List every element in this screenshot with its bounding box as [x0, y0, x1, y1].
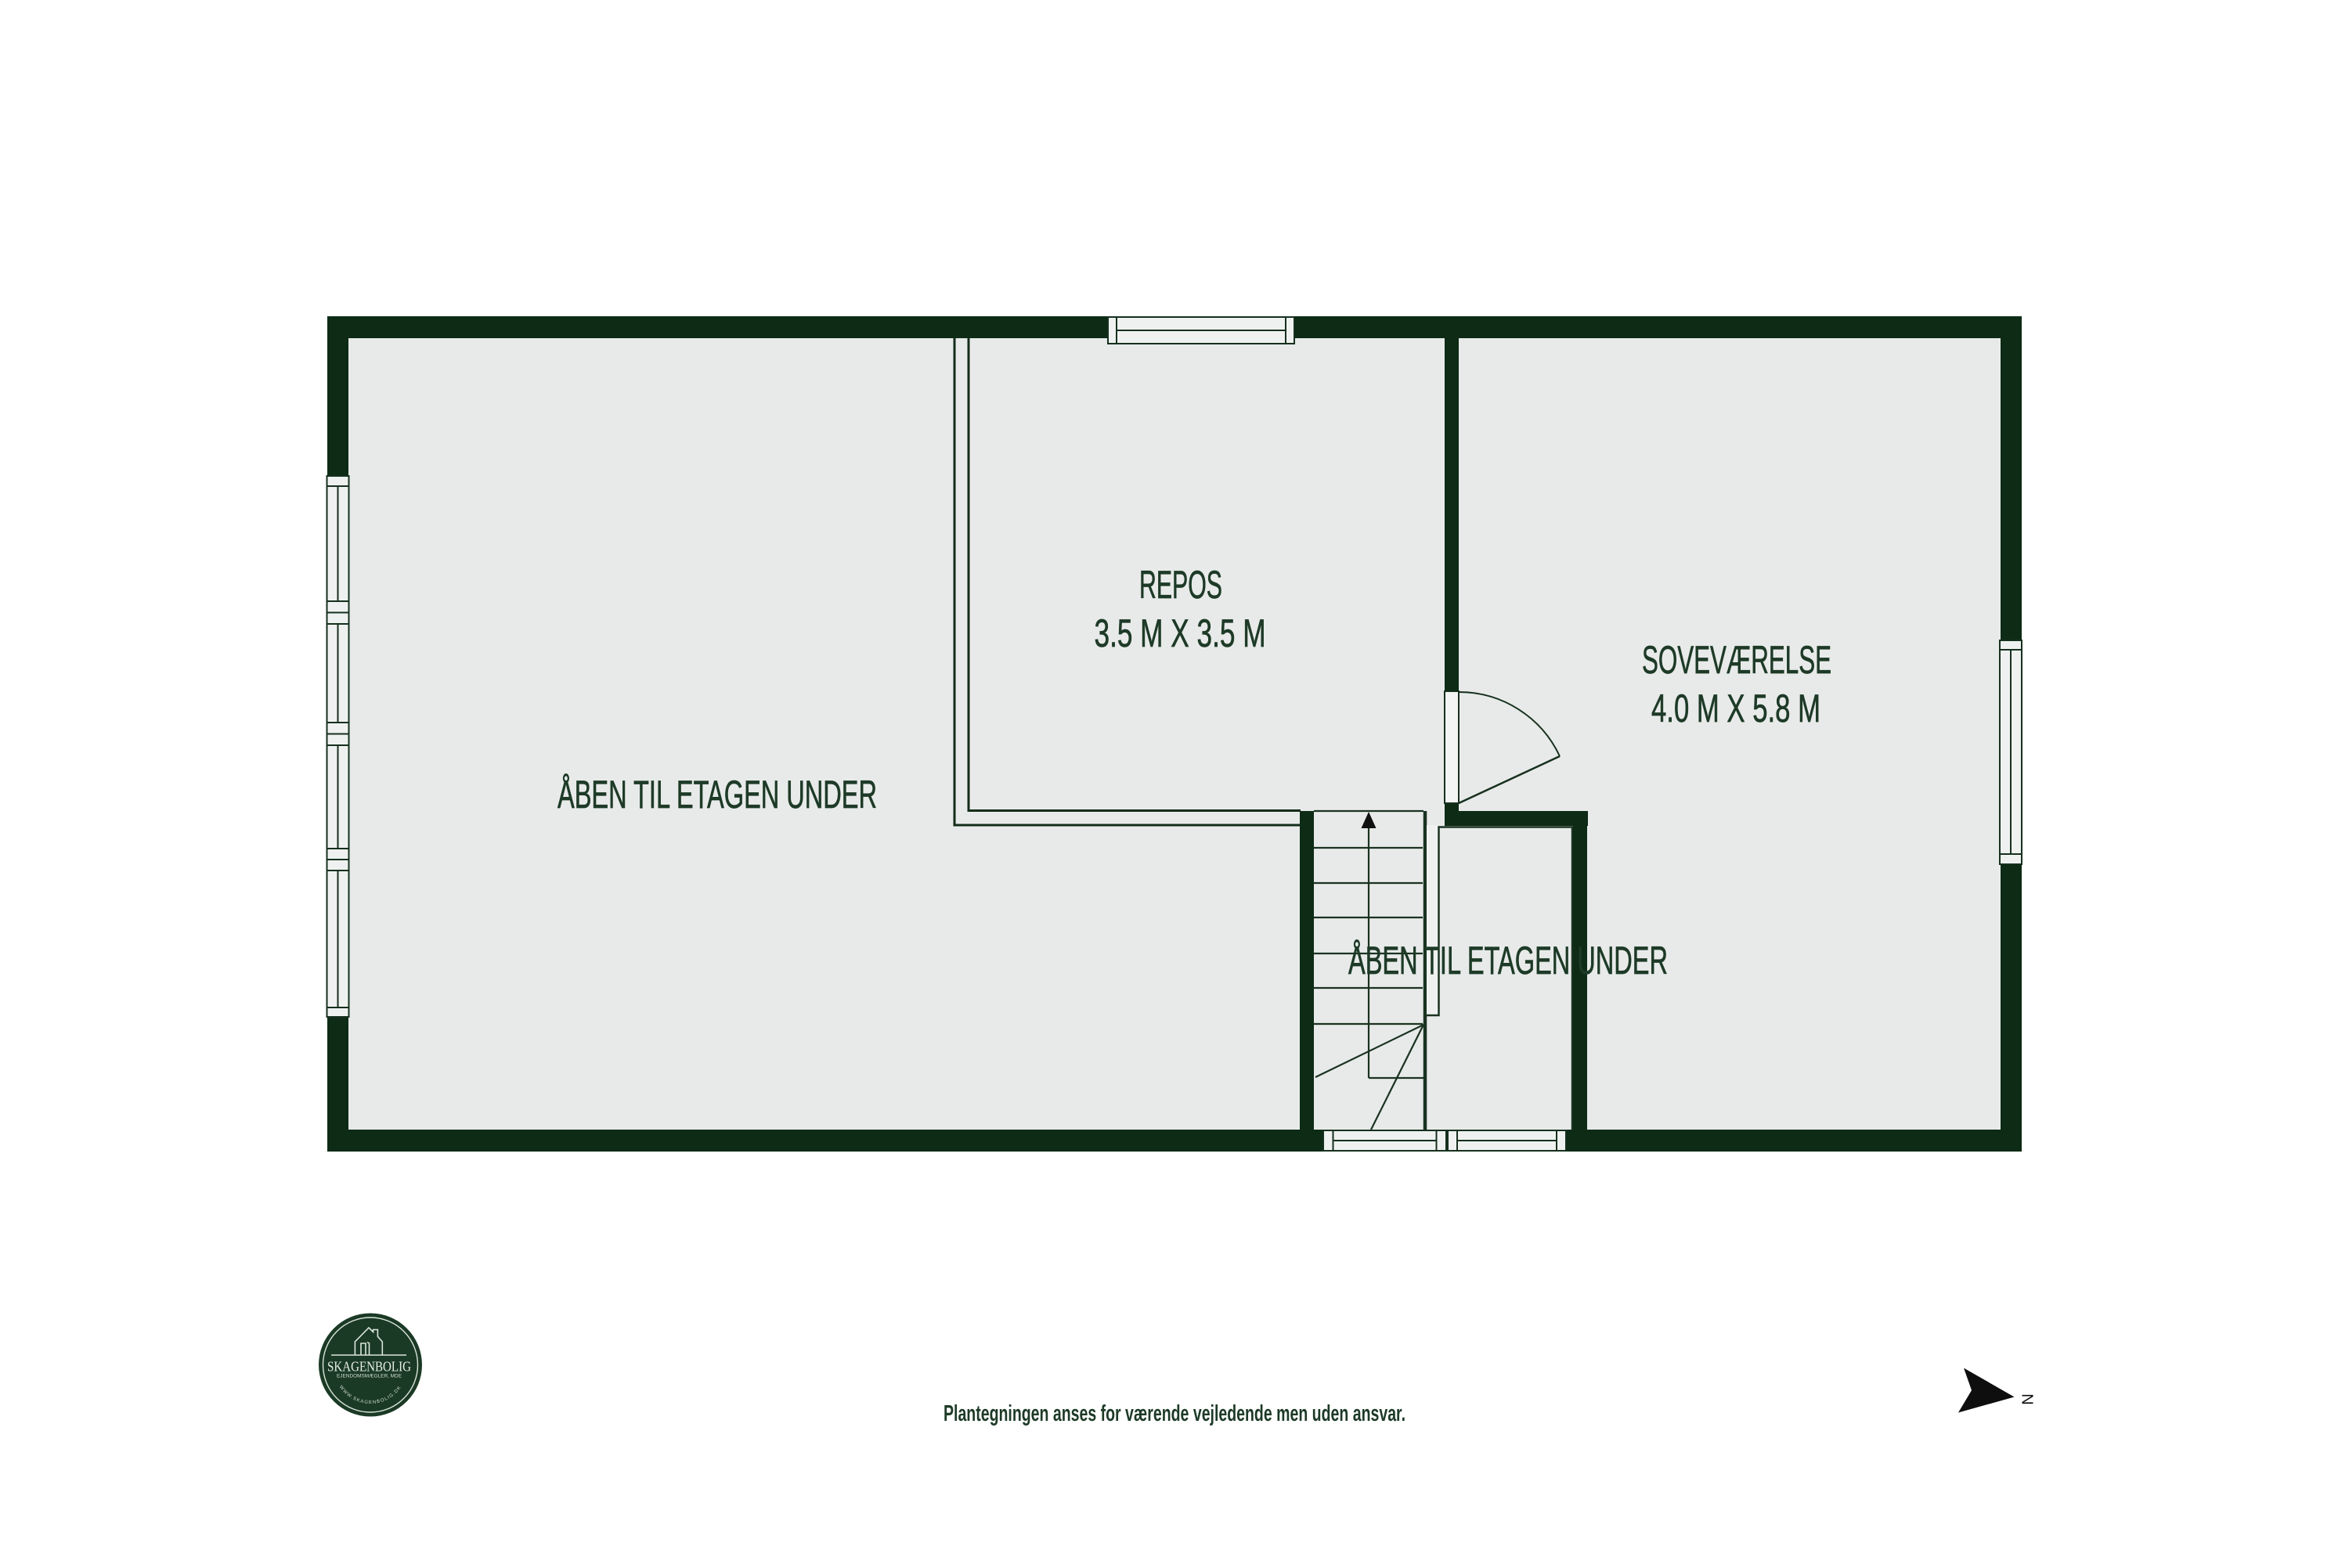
svg-text:ÅBEN TIL ETAGEN UNDER: ÅBEN TIL ETAGEN UNDER: [1348, 939, 1668, 982]
svg-text:Plantegningen anses for værend: Plantegningen anses for værende vejleden…: [944, 1401, 1405, 1426]
svg-text:SOVEVÆRELSE: SOVEVÆRELSE: [1642, 638, 1831, 682]
svg-text:ÅBEN TIL ETAGEN UNDER: ÅBEN TIL ETAGEN UNDER: [557, 773, 877, 816]
svg-text:EJENDOMSMÆGLER, MDE: EJENDOMSMÆGLER, MDE: [337, 1374, 402, 1379]
svg-text:N: N: [2019, 1393, 2036, 1404]
svg-text:4.0 M X 5.8 M: 4.0 M X 5.8 M: [1651, 687, 1820, 730]
svg-text:3.5 M X 3.5 M: 3.5 M X 3.5 M: [1095, 611, 1266, 655]
svg-text:SKAGENBOLIG: SKAGENBOLIG: [327, 1359, 411, 1375]
svg-text:REPOS: REPOS: [1139, 563, 1222, 607]
